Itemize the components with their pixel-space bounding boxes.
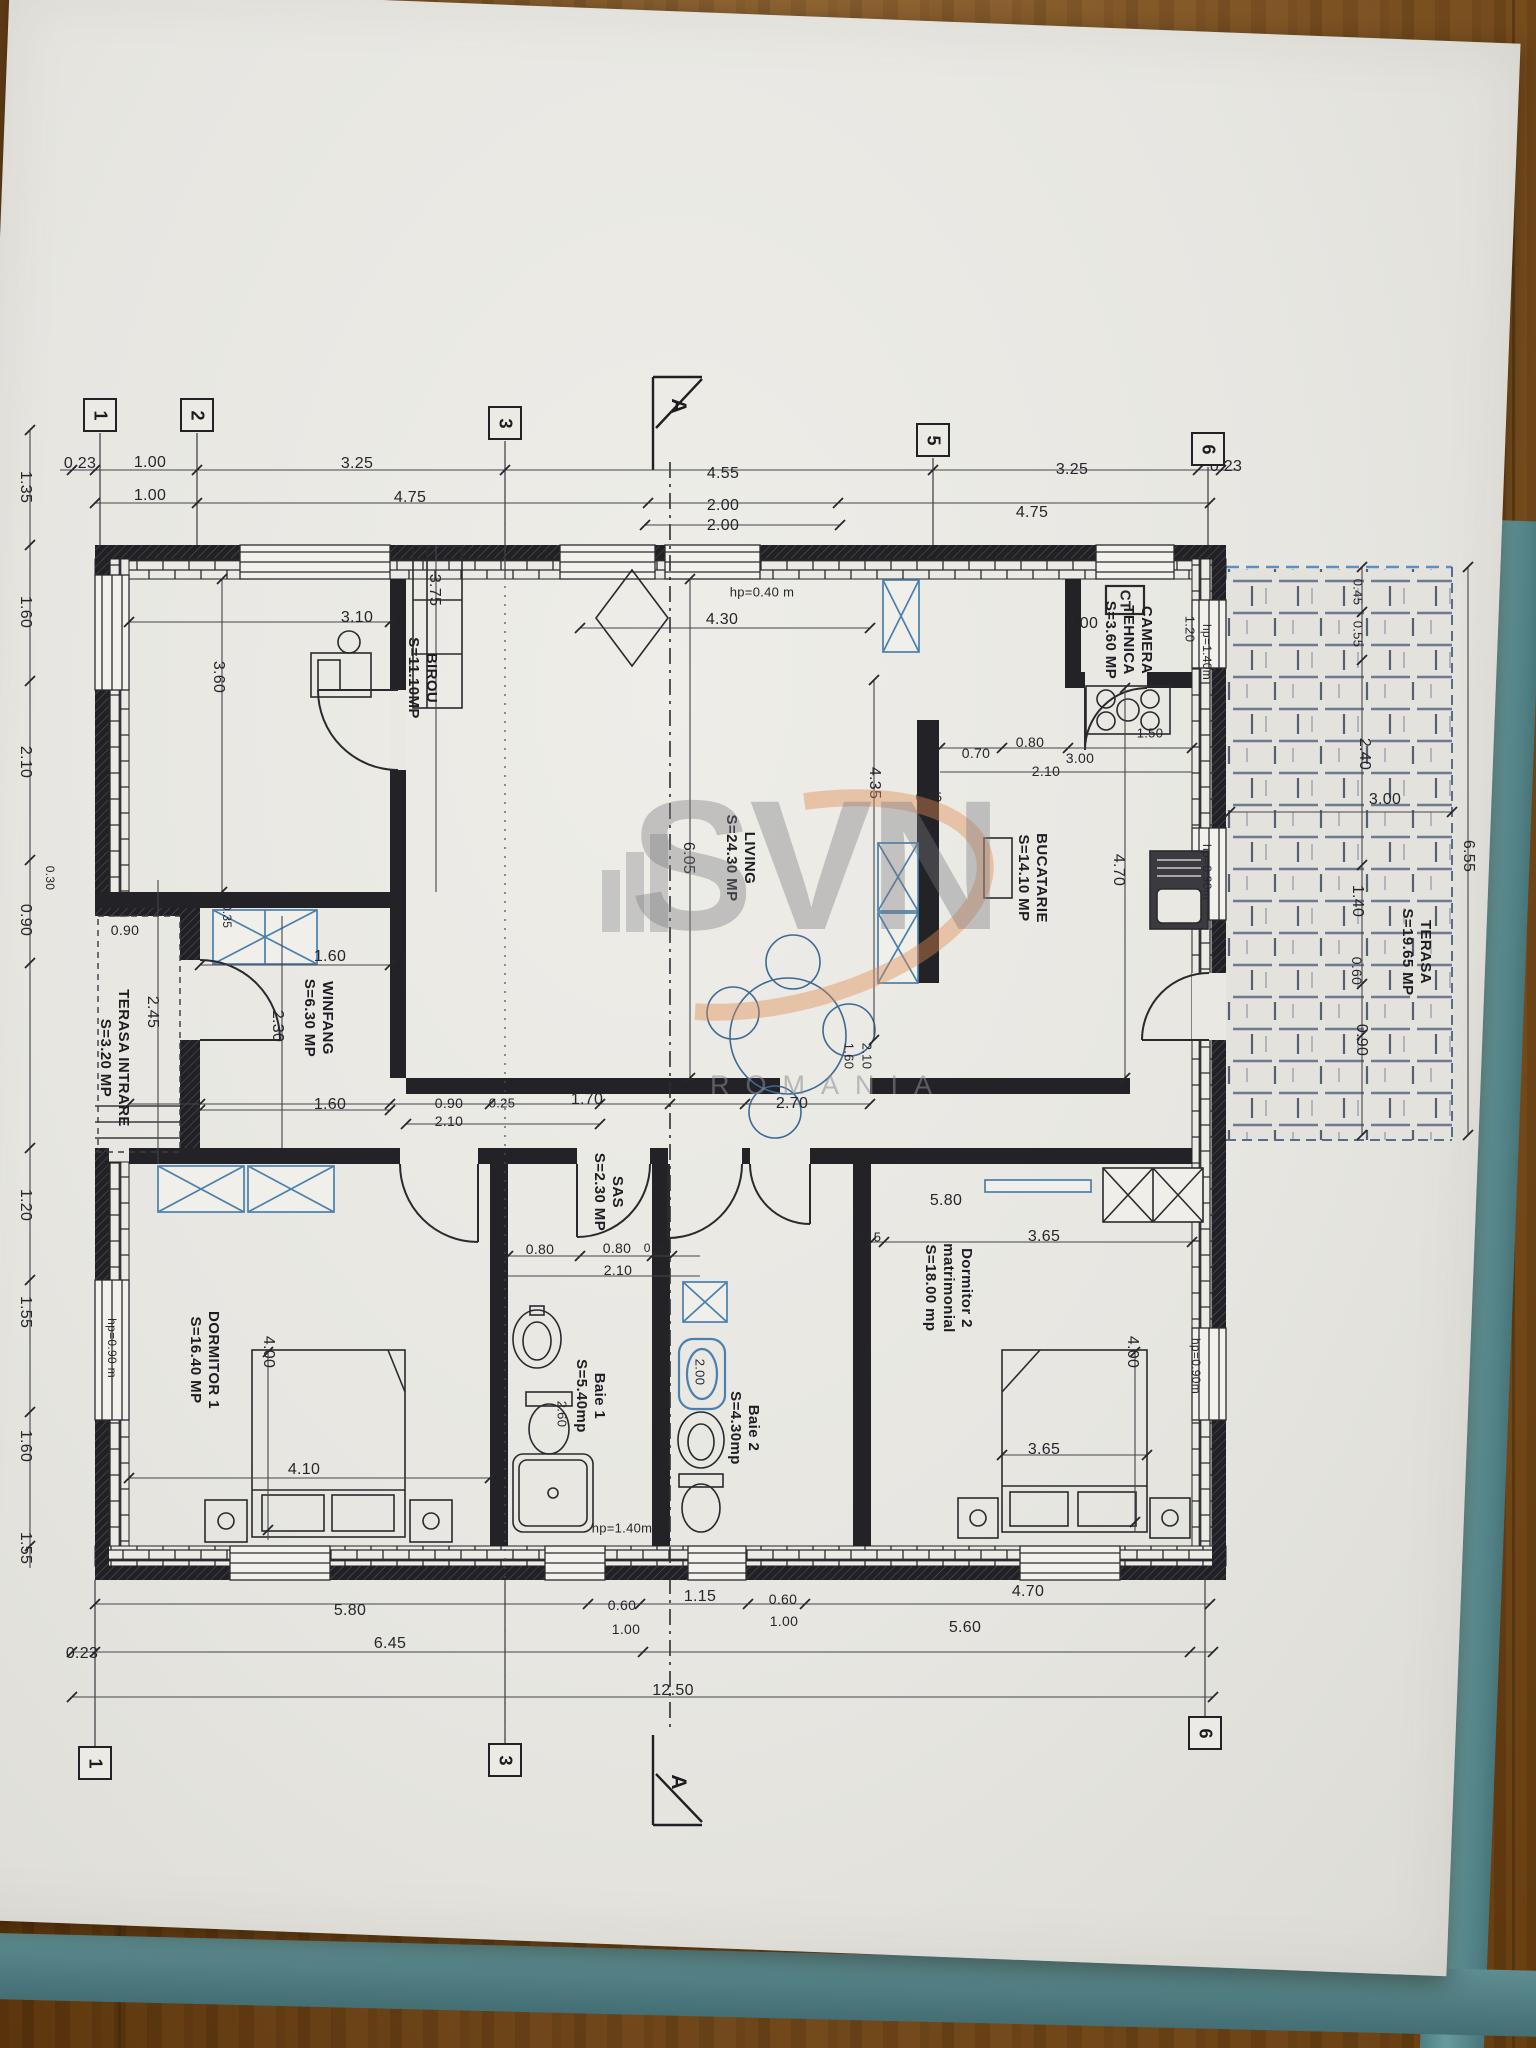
grid-bubble-5: 5 [916,423,950,457]
dim-label: 1.60 [842,1043,857,1070]
room-label: CAMERATEHNICAS=3.60 MP [1101,601,1155,679]
grid-bubble-6: 6 [1188,1716,1222,1750]
dim-label: 0.90 [435,1095,463,1111]
dim-label: 2.10 [860,1043,875,1070]
grid-bubble-2: 2 [180,398,214,432]
room-label: Dormitor 2matrimonialS=18.00 mp [921,1243,975,1332]
dim-label: 2.10 [16,746,34,778]
room-label: DORMITOR 1S=16.40 MP [186,1311,222,1409]
dim-label: 1.00 [770,1613,798,1629]
dim-label: 3.00 [1066,615,1098,633]
dim-label: 2.40 [1355,738,1373,770]
dim-label: 5.60 [949,1619,981,1637]
room-label: BIROUS=11.10MP [404,637,440,719]
dim-label: 0.23 [64,455,96,473]
plan-text-labels: 0.231.003.254.553.250.231.004.752.004.75… [0,0,1536,2048]
dim-label: 2.30 [268,1010,286,1042]
dim-label: 0.80 [526,1241,554,1257]
dim-label: 6.45 [374,1635,406,1653]
dim-label: 2.00 [693,1359,708,1386]
room-label: BUCATARIES=14.10 MP [1014,833,1050,923]
dim-label: hp=0.90 m [105,1318,119,1378]
room-label: TERASA INTRARES=3.20 MP [96,989,132,1127]
dim-label: 2.10 [435,1113,463,1129]
dim-label: 0.55 [1351,621,1366,648]
dim-label: 2.10 [604,1262,632,1278]
dim-label: 3.65 [1028,1228,1060,1246]
dim-label: 3.25 [341,455,373,473]
section-marker-label: A [666,1774,690,1789]
dim-label: 3.75 [425,574,443,606]
dim-label: hp=0.40 m [730,585,795,600]
dim-label: 1.60 [16,1430,34,1462]
room-label: WINFANGS=6.30 MP [300,979,336,1057]
dim-label: 2.70 [776,1095,808,1113]
dim-label: 3.00 [1369,791,1401,809]
dim-label: 2.45 [143,996,161,1028]
room-label: SASS=2.30 MP [590,1153,626,1231]
grid-bubble-3: 3 [488,406,522,440]
dim-label: 0.23 [66,1645,98,1663]
section-marker-label: A [666,398,690,413]
dim-label: hp=0.90m [1200,844,1214,900]
dim-label: 0.90 [16,904,34,936]
dim-label: 0.15 [855,1230,882,1245]
dim-label: 2.10 [1032,763,1060,779]
dim-label: hp=1.40m [592,1521,653,1536]
dim-label: 5.80 [334,1602,366,1620]
dim-label: 1.60 [314,948,346,966]
dim-label: 3.25 [1056,461,1088,479]
room-label: Baie 1S=5.40mp [572,1359,608,1433]
dim-label: 1.20 [1183,616,1198,643]
dim-label: 1.00 [134,454,166,472]
dim-label: 4.10 [288,1461,320,1479]
room-label: LIVINGS=24.30 MP [722,815,758,902]
dim-label: 4.75 [1016,504,1048,522]
dim-label: 0.60 [1349,957,1365,985]
dim-label: 0.35 [220,904,234,929]
dim-label: 1.60 [16,596,34,628]
dim-label: 3.10 [341,609,373,627]
dim-label: 1.40 [1348,885,1366,917]
dim-label: 0.60 [769,1591,797,1607]
dim-label: 0.60 [608,1597,636,1613]
dim-label: 3.60 [209,661,227,693]
dim-label: 1.15 [684,1588,716,1606]
dim-label: hp=0.90m [1189,1338,1203,1394]
dim-label: 0.90 [1352,1024,1370,1056]
dim-label: 5.80 [930,1192,962,1210]
floor-plan-drawing: 0.231.003.254.553.250.231.004.752.004.75… [0,0,1536,2048]
dim-label: 1.50 [1137,726,1164,741]
dim-label: 4.00 [259,1336,277,1368]
photo-of-floor-plan: 0.231.003.254.553.250.231.004.752.004.75… [0,0,1536,2048]
dim-label: hp=1.40m [1200,624,1214,680]
grid-bubble-3: 3 [488,1743,522,1777]
grid-bubble-1: 1 [83,398,117,432]
dim-label: 0.10 [644,1241,669,1255]
dim-label: 0.70 [962,745,990,761]
dim-label: 6.05 [679,842,697,874]
dim-label: 4.55 [707,465,739,483]
dim-label: 1.20 [16,1189,34,1221]
dim-label: 4.35 [865,767,883,799]
dim-label: 0.30 [43,866,57,891]
room-label: Baie 2S=4.30mp [726,1391,762,1465]
dim-label: 2.00 [707,517,739,535]
room-label: TERASAS=19.65 MP [1398,909,1434,996]
dim-label: 3.00 [1066,750,1094,766]
dim-label: 1.00 [134,487,166,505]
dim-label: 6.55 [1459,840,1477,872]
dim-label: 1.35 [16,471,34,503]
dim-label: 1.55 [16,1296,34,1328]
dim-label: 0.25 [489,1096,516,1111]
dim-label: 4.30 [706,611,738,629]
grid-bubble-1: 1 [78,1746,112,1780]
dim-label: 0.90 [111,922,139,938]
dim-label: 0.80 [1016,734,1044,750]
dim-label: 3.65 [1028,1441,1060,1459]
dim-label: 4.00 [1123,1336,1141,1368]
dim-label: 4.70 [1012,1583,1044,1601]
dim-label: 4.70 [1109,854,1127,886]
dim-label: 0.45 [1351,579,1366,606]
dim-label: 1.00 [612,1621,640,1637]
dim-label: 2.00 [707,497,739,515]
grid-bubble-6: 6 [1191,432,1225,466]
dim-label: 0.80 [603,1240,631,1256]
dim-label: 4.75 [394,489,426,507]
dim-label: 0.25 [916,790,943,805]
dim-label: 1.60 [314,1096,346,1114]
dim-label: 1.55 [16,1532,34,1564]
dim-label: 12.50 [652,1682,694,1700]
dim-label: 2.60 [555,1401,570,1428]
dim-label: 1.70 [571,1091,603,1109]
